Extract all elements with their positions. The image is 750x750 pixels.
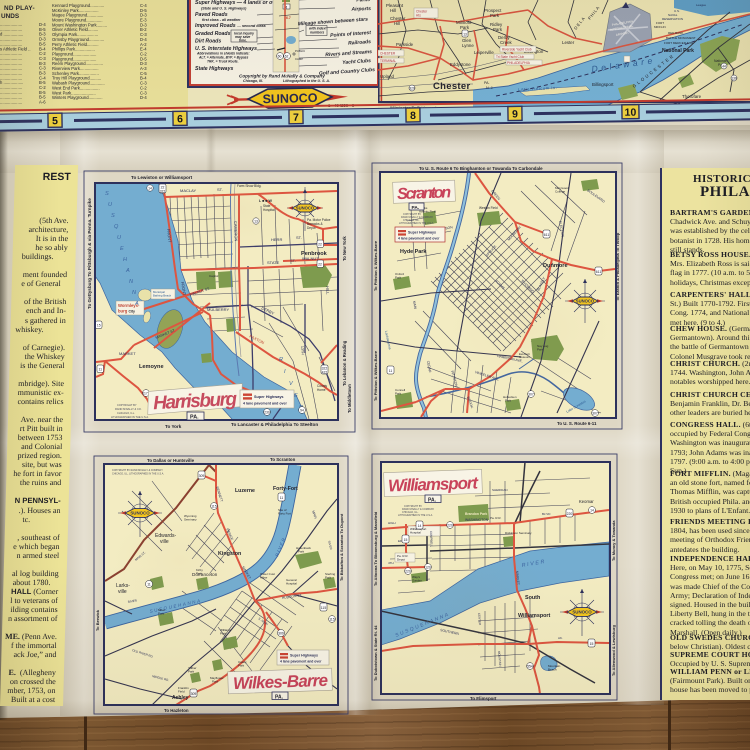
svg-text:TRK. = Truck Route.: TRK. = Truck Route. <box>207 60 239 64</box>
svg-text:To Berwick: To Berwick <box>95 609 100 631</box>
svg-text:ND PLAY-: ND PLAY- <box>4 5 35 12</box>
svg-text:To York: To York <box>165 424 182 429</box>
svg-text:Hospital: Hospital <box>263 208 275 212</box>
svg-text:307: 307 <box>528 393 534 397</box>
svg-text:SUNOCO: SUNOCO <box>572 610 592 615</box>
svg-text:Golf and Country Clubs: Golf and Country Clubs <box>319 67 376 77</box>
svg-text:Kingston: Kingston <box>218 551 241 557</box>
svg-text:14: 14 <box>590 509 594 513</box>
svg-text:League: League <box>696 3 706 7</box>
svg-text:South: South <box>525 595 540 601</box>
svg-text:Park: Park <box>196 571 203 575</box>
svg-text:Hospital: Hospital <box>286 581 297 585</box>
svg-text:CAMP: CAMP <box>295 57 303 61</box>
svg-text:To Dallas or Huntsville: To Dallas or Huntsville <box>147 458 195 463</box>
svg-text:LITHOGRAPHED IN THE U.S.A.: LITHOGRAPHED IN THE U.S.A. <box>398 514 433 517</box>
svg-text:6.7: 6.7 <box>286 16 291 20</box>
svg-text:120: 120 <box>425 566 431 570</box>
svg-text:RESERVATION: RESERVATION <box>662 17 683 21</box>
svg-text:N. J.: N. J. <box>486 86 493 90</box>
svg-text:Winters Playground............: Winters Playground............ <box>52 95 103 100</box>
svg-text:611: 611 <box>596 270 602 274</box>
svg-text:8: 8 <box>410 110 416 122</box>
svg-text:CHICAGO, ILL. LITHOGRAPHED I: CHICAGO, ILL. LITHOGRAPHED IN THE U.S.A. <box>112 472 164 475</box>
svg-text:A: A <box>134 301 139 307</box>
svg-text:Weston Field: Weston Field <box>479 206 498 210</box>
svg-text:CAMERON: CAMERON <box>233 221 239 242</box>
svg-text:Dirt Roads: Dirt Roads <box>195 39 221 45</box>
svg-text:To Pittston & Wilkes-Barre: To Pittston & Wilkes-Barre <box>373 240 378 291</box>
svg-text:Lemoyne: Lemoyne <box>139 364 164 370</box>
svg-text:Park: Park <box>188 669 195 673</box>
svg-text:11: 11 <box>280 496 284 500</box>
svg-text:E: E <box>294 393 298 399</box>
svg-text:320: 320 <box>409 86 415 90</box>
svg-text:Q: Q <box>114 224 119 230</box>
svg-text:To U. S. Route 6 To Bingham: To U. S. Route 6 To Binghamton or Towand… <box>419 166 543 171</box>
svg-text:11: 11 <box>389 369 393 373</box>
svg-text:To Pittston & Wilkes-Barre: To Pittston & Wilkes-Barre <box>373 350 378 401</box>
svg-text:burg City: burg City <box>118 309 135 314</box>
svg-text:220: 220 <box>405 570 411 574</box>
svg-text:To Muncy & Towanda: To Muncy & Towanda <box>611 520 616 561</box>
svg-text:Depot: Depot <box>397 558 405 562</box>
svg-text:Harrisburg: Harrisburg <box>153 389 238 414</box>
svg-text:554: 554 <box>527 665 533 669</box>
svg-text:Park: Park <box>490 13 500 18</box>
svg-text:Park: Park <box>493 27 503 32</box>
svg-text:ST.: ST. <box>290 258 296 263</box>
svg-text:Hill: Hill <box>394 21 400 26</box>
svg-text:4TH: 4TH <box>388 561 394 565</box>
svg-text:Williamsport: Williamsport <box>388 473 480 495</box>
svg-text:WASHINGTON: WASHINGTON <box>465 518 489 522</box>
svg-text:To Altoona To Bloomsburg & Ma: To Altoona To Bloomsburg & Mansfield <box>373 511 378 586</box>
svg-text:Park: Park <box>212 679 219 683</box>
svg-text:13TH: 13TH <box>300 346 305 356</box>
svg-text:Farm Show Bldg.: Farm Show Bldg. <box>237 184 262 188</box>
svg-text:R: R <box>279 357 283 363</box>
svg-text:Wilkes-Barre: Wilkes-Barre <box>233 671 329 693</box>
svg-text:CAMPBELL: CAMPBELL <box>429 531 434 547</box>
svg-text:9: 9 <box>512 108 518 120</box>
svg-text:S: S <box>111 213 115 219</box>
svg-text:Park: Park <box>158 611 165 615</box>
svg-text:MARKET: MARKET <box>119 351 136 356</box>
svg-text:MIFFLIN: MIFFLIN <box>654 25 666 29</box>
svg-text:Park: Park <box>220 631 227 635</box>
svg-text:Graded Roads: Graded Roads <box>195 31 231 37</box>
svg-text:Dunmore: Dunmore <box>543 263 568 269</box>
svg-text:Garden: Garden <box>412 579 422 583</box>
svg-text:322: 322 <box>160 189 166 193</box>
svg-text:LITHOGRAPHED IN THE U.S.A.: LITHOGRAPHED IN THE U.S.A. <box>399 222 434 225</box>
svg-text:Lynne: Lynne <box>462 43 474 48</box>
svg-text:first class - all weather: first class - all weather <box>202 18 241 22</box>
svg-text:Brandon Park: Brandon Park <box>465 512 487 516</box>
svg-text:LITHOGRAPHED IN THE U.S.A.: LITHOGRAPHED IN THE U.S.A. <box>111 415 149 419</box>
svg-text:ville: ville <box>160 539 169 545</box>
svg-text:Williamsport: Williamsport <box>518 613 551 619</box>
svg-text:Super Highways: Super Highways <box>254 395 284 399</box>
svg-text:94: 94 <box>300 409 304 413</box>
svg-text:D-4: D-4 <box>140 95 147 100</box>
svg-text:Billingsport: Billingsport <box>592 82 614 87</box>
svg-text:Creek: Creek <box>500 40 513 45</box>
svg-text:4 lane pavement and over: 4 lane pavement and over <box>398 237 440 241</box>
svg-text:College: College <box>555 190 566 194</box>
svg-text:Super Highways — 4 lanes or ov: Super Highways — 4 lanes or over <box>195 0 281 6</box>
svg-text:To Gettysburg To Pittsburgh &: To Gettysburg To Pittsburgh & via Penna.… <box>87 198 92 309</box>
svg-text:Parkside: Parkside <box>396 42 414 47</box>
svg-text:230: 230 <box>264 411 270 415</box>
svg-text:numbers: numbers <box>310 31 324 35</box>
svg-text:115: 115 <box>211 505 217 509</box>
svg-text:To Lewiston or Williamsport: To Lewiston or Williamsport <box>131 175 193 180</box>
svg-text:L ■ ■ W: L ■ ■ W <box>259 199 272 203</box>
svg-text:115: 115 <box>329 618 335 622</box>
svg-text:14: 14 <box>418 524 422 528</box>
svg-text:To Bickafton & Scranton To Du: To Bickafton & Scranton To Dupont <box>339 513 344 581</box>
svg-text:11: 11 <box>147 583 151 587</box>
svg-text:Railroads: Railroads <box>348 39 371 47</box>
svg-text:6: 6 <box>177 113 183 125</box>
svg-text:ST.: ST. <box>217 187 223 192</box>
svg-text:PUBLIC: PUBLIC <box>295 49 305 53</box>
svg-text:Airports: Airports <box>350 6 371 13</box>
svg-text:PHILADELPHIA: PHILADELPHIA <box>507 61 531 65</box>
svg-text:11: 11 <box>90 324 94 328</box>
svg-text:Tri State Yacht Club: Tri State Yacht Club <box>496 55 524 59</box>
svg-text:Park: Park <box>395 275 402 279</box>
svg-text:To Middletown: To Middletown <box>347 384 352 413</box>
svg-text:15: 15 <box>97 324 101 328</box>
svg-text:Leiperville: Leiperville <box>474 50 494 55</box>
svg-text:14: 14 <box>148 186 152 190</box>
svg-text:Park: Park <box>537 348 544 352</box>
svg-text:Capitol: Capitol <box>209 274 219 278</box>
svg-text:A-6: A-6 <box>39 100 46 105</box>
svg-text:Lester: Lester <box>562 40 575 45</box>
svg-text:15: 15 <box>404 538 408 542</box>
svg-text:To Duboistown & State Rt. 44: To Duboistown & State Rt. 44 <box>373 625 378 681</box>
svg-text:To Hazleton: To Hazleton <box>164 708 189 713</box>
svg-text:115: 115 <box>321 606 327 610</box>
svg-text:5: 5 <box>52 115 58 127</box>
svg-text:To Allenwood & Lewisburg: To Allenwood & Lewisburg <box>611 625 616 676</box>
svg-text:MACLAY: MACLAY <box>180 188 196 193</box>
svg-text:Mdse: Mdse <box>260 575 268 579</box>
svg-text:ST.: ST. <box>296 235 302 240</box>
svg-text:BL'VD: BL'VD <box>542 512 551 516</box>
svg-text:To Lebanon & Reading: To Lebanon & Reading <box>342 340 347 386</box>
svg-text:PA.: PA. <box>484 81 490 85</box>
svg-text:4 lane pavement and over: 4 lane pavement and over <box>243 402 288 406</box>
svg-text:STATE: STATE <box>267 260 280 265</box>
svg-text:Field: Field <box>178 689 185 693</box>
svg-text:S: S <box>105 191 109 197</box>
svg-text:HILL: HILL <box>325 286 330 295</box>
svg-text:Yacht Clubs: Yacht Clubs <box>342 58 371 66</box>
svg-text:PA.: PA. <box>275 694 284 700</box>
svg-text:Hospital: Hospital <box>410 531 421 535</box>
svg-text:SHERIDAN: SHERIDAN <box>492 488 508 492</box>
svg-text:FORT MERCER SITE: FORT MERCER SITE <box>664 41 693 45</box>
svg-text:4 lane pavement and over: 4 lane pavement and over <box>280 660 322 664</box>
svg-text:MULBERRY: MULBERRY <box>207 307 229 312</box>
svg-text:CHESTER: CHESTER <box>380 51 396 55</box>
svg-text:309: 309 <box>191 692 197 696</box>
svg-text:Scranton: Scranton <box>397 184 452 203</box>
svg-text:To U. S. Route 6-11: To U. S. Route 6-11 <box>557 421 597 426</box>
svg-text:13: 13 <box>254 219 258 223</box>
svg-text:7: 7 <box>293 112 299 124</box>
svg-text:Luzerne: Luzerne <box>235 488 255 494</box>
svg-text:307: 307 <box>592 412 598 416</box>
svg-text:Hts: Hts <box>416 14 421 18</box>
svg-text:15: 15 <box>590 642 594 646</box>
svg-text:State Highways: State Highways <box>195 66 233 72</box>
svg-text:COPYRIGHT BY: COPYRIGHT BY <box>117 403 137 407</box>
svg-text:Park: Park <box>298 549 305 553</box>
svg-text:To Scranton: To Scranton <box>270 457 296 462</box>
svg-text:PA.: PA. <box>428 497 437 503</box>
svg-text:time.: time. <box>239 39 247 43</box>
svg-text:AK.: AK. <box>558 636 563 640</box>
svg-text:Park: Park <box>505 398 512 402</box>
svg-text:RAND MᵗNALLY & CO.: RAND MᵗNALLY & CO. <box>115 407 142 411</box>
svg-text:309: 309 <box>199 474 205 478</box>
svg-text:Parks: Parks <box>356 0 370 3</box>
svg-text:Riverside Yacht Club: Riverside Yacht Club <box>502 47 532 51</box>
svg-text:Pa. R.R.: Pa. R.R. <box>490 516 502 520</box>
svg-text:220: 220 <box>447 524 453 528</box>
svg-text:422: 422 <box>322 370 328 374</box>
svg-text:HERR: HERR <box>271 237 282 242</box>
svg-text:13: 13 <box>463 32 467 36</box>
svg-text:To New York: To New York <box>342 236 347 261</box>
svg-text:Home: Home <box>317 388 326 392</box>
svg-text:...................: ................... <box>0 100 22 105</box>
svg-text:PA.: PA. <box>190 415 199 421</box>
svg-text:SUNOCO: SUNOCO <box>576 299 595 304</box>
svg-text:(State and U. S. Highways): (State and U. S. Highways) <box>201 7 247 11</box>
svg-text:Park: Park <box>395 391 402 395</box>
svg-text:Hyde Park: Hyde Park <box>400 249 426 255</box>
svg-text:ville: ville <box>118 589 127 595</box>
svg-text:UNDS: UNDS <box>1 13 20 20</box>
svg-text:E: E <box>120 246 124 252</box>
svg-text:22: 22 <box>318 263 322 267</box>
svg-text:BATTLE MONUMENT: BATTLE MONUMENT <box>666 36 696 40</box>
svg-text:Penbrook: Penbrook <box>301 251 328 257</box>
svg-text:Seminary: Seminary <box>184 517 197 521</box>
svg-text:10: 10 <box>625 107 637 119</box>
svg-text:Forty Fort: Forty Fort <box>278 511 291 515</box>
svg-text:Super Highways: Super Highways <box>290 654 318 658</box>
svg-text:62: 62 <box>285 55 289 59</box>
svg-text:130: 130 <box>731 76 737 80</box>
svg-text:Improved Roads — second class: Improved Roads — second class <box>195 23 266 29</box>
svg-text:Keomar: Keomar <box>579 499 594 504</box>
svg-text:220: 220 <box>567 512 573 516</box>
svg-text:Lithographed in the U. S. A.: Lithographed in the U. S. A. <box>283 79 330 83</box>
svg-text:SUNOCO: SUNOCO <box>296 206 315 211</box>
svg-text:Upland: Upland <box>380 74 394 79</box>
svg-text:Hill: Hill <box>390 8 396 13</box>
svg-text:TERMINAL: TERMINAL <box>380 59 396 63</box>
svg-text:Forty-Fort: Forty-Fort <box>273 486 298 492</box>
svg-text:Beach: Beach <box>548 668 557 672</box>
svg-text:RED BANK: RED BANK <box>668 31 683 35</box>
svg-text:Depot: Depot <box>307 226 316 230</box>
svg-text:611: 611 <box>544 233 550 237</box>
svg-text:Ashley: Ashley <box>172 695 189 701</box>
svg-text:Copyright by Rand McNally & Co: Copyright by Rand McNally & Company <box>239 74 325 79</box>
svg-text:44: 44 <box>722 64 726 68</box>
svg-text:Points of Interest: Points of Interest <box>330 30 371 39</box>
svg-text:PA.: PA. <box>412 205 420 211</box>
svg-text:A: A <box>125 268 130 274</box>
svg-text:11: 11 <box>99 368 103 372</box>
svg-text:Rivers and Streams: Rivers and Streams <box>325 49 372 58</box>
svg-text:309: 309 <box>278 632 284 636</box>
svg-text:Park: Park <box>460 25 470 30</box>
svg-text:Chicago, Ill.: Chicago, Ill. <box>243 79 263 83</box>
svg-text:22: 22 <box>318 243 322 247</box>
svg-text:HIGH: HIGH <box>388 521 396 525</box>
svg-text:Dickinson Seminary: Dickinson Seminary <box>505 531 532 535</box>
svg-text:To Elimsport: To Elimsport <box>470 696 497 701</box>
svg-text:Chester: Chester <box>433 81 470 92</box>
svg-text:CHICAGO, ILL.: CHICAGO, ILL. <box>117 411 135 415</box>
svg-text:COPYRIGHT BY RAND MᵗNALLY & CO: COPYRIGHT BY RAND MᵗNALLY & COMPANY <box>112 468 163 472</box>
svg-text:Park: Park <box>325 575 332 579</box>
svg-text:60: 60 <box>278 55 282 59</box>
svg-text:Bathing Beach: Bathing Beach <box>153 293 172 297</box>
svg-text:SUNOCO: SUNOCO <box>130 511 150 516</box>
svg-text:National Park: National Park <box>662 48 694 54</box>
svg-text:To Lancaster & Philadelphia T: To Lancaster & Philadelphia To Steelton <box>231 422 318 427</box>
svg-text:Park: Park <box>238 663 245 667</box>
svg-text:Super Highways: Super Highways <box>408 231 436 235</box>
svg-text:Eddystone: Eddystone <box>450 62 471 67</box>
